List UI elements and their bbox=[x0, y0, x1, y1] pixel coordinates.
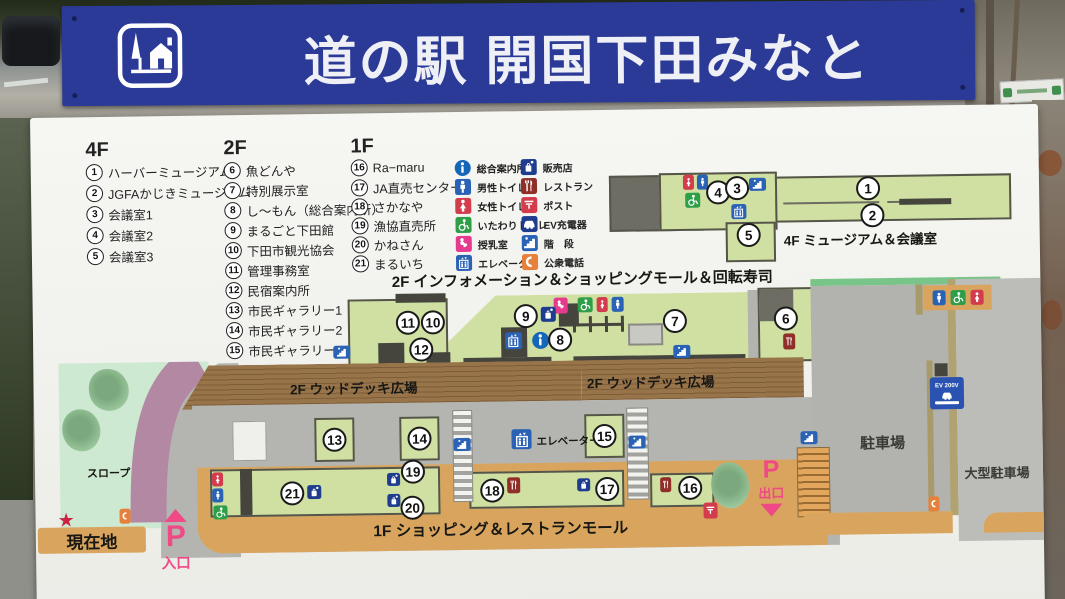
parking-bottom-edge bbox=[801, 511, 953, 535]
female-toilet-icon bbox=[683, 175, 694, 190]
icon-legend-item: 総合案内所 bbox=[455, 159, 527, 176]
background-car bbox=[2, 16, 60, 66]
ev-sign-bar bbox=[935, 401, 959, 404]
legend-item-number: 12 bbox=[225, 282, 242, 299]
elevator-icon bbox=[511, 429, 531, 449]
sign-green-mark bbox=[1003, 88, 1012, 97]
legend-item-label: まるごと下田館 bbox=[246, 220, 334, 240]
legend-item: 9まるごと下田館 bbox=[224, 220, 334, 241]
floor2-small-room bbox=[628, 323, 663, 345]
legend-item-label: 市民ギャラリー1 bbox=[248, 300, 343, 320]
stairs-icon bbox=[454, 438, 471, 451]
parking-exit-p: P bbox=[746, 457, 796, 483]
male-toilet-icon bbox=[612, 297, 624, 312]
legend-item-number: 7 bbox=[224, 182, 241, 199]
background-left-strip bbox=[0, 118, 33, 508]
parking-entrance-label: 入口 bbox=[148, 552, 204, 574]
stairs-icon bbox=[333, 346, 350, 359]
female-toilet-icon bbox=[970, 290, 983, 305]
payphone-icon bbox=[119, 509, 130, 524]
legend-item-number: 4 bbox=[87, 227, 104, 244]
banner-screw bbox=[72, 16, 77, 21]
accessible-toilet-icon bbox=[950, 290, 965, 305]
stairs-icon bbox=[749, 178, 766, 191]
banner-screw bbox=[72, 93, 77, 98]
floor4-label: 4F ミュージアム＆会議室 bbox=[784, 227, 938, 249]
legend-item: 1ハーバーミュージアム bbox=[86, 161, 232, 182]
icon-legend-item: 女性トイレ bbox=[455, 197, 527, 214]
accessible-toilet-icon bbox=[213, 505, 227, 519]
floor2-title: 2F インフォメーション＆ショッピングモール＆回転寿司 bbox=[382, 266, 782, 293]
background-left-bottom bbox=[0, 500, 33, 599]
legend-item: 7特別展示室 bbox=[224, 180, 309, 200]
floor1-label: 1F ショッピング＆レストランモール bbox=[366, 516, 636, 542]
legend-item: 4会議室2 bbox=[87, 225, 154, 245]
legend-item-number: 1 bbox=[86, 164, 103, 181]
legend-item: 19漁協直売所 bbox=[351, 215, 436, 235]
stairs-icon bbox=[800, 431, 817, 444]
info-icon bbox=[455, 160, 471, 176]
elevator-icon bbox=[456, 255, 472, 271]
large-parking-label: 大型駐車場 bbox=[951, 462, 1043, 482]
icon-legend-item: 授乳室 bbox=[456, 235, 508, 252]
legend-item-number: 21 bbox=[352, 255, 369, 272]
banner-screw bbox=[960, 85, 965, 90]
parking-label: 駐車場 bbox=[842, 432, 922, 454]
legend-item-number: 8 bbox=[224, 202, 241, 219]
icon-legend-item: 販売店 bbox=[521, 158, 573, 175]
legend-item-number: 2 bbox=[86, 185, 103, 202]
legend-item: 10下田市観光協会 bbox=[225, 240, 335, 261]
payphone-icon bbox=[522, 254, 538, 270]
legend-item-label: JA直売センター bbox=[373, 177, 463, 197]
legend-item-label: かねさん bbox=[374, 235, 424, 255]
legend-item-label: 特別展示室 bbox=[246, 180, 309, 200]
info-icon bbox=[532, 332, 549, 349]
legend-item-label: 魚どんや bbox=[246, 160, 296, 180]
icon-legend-item: ポスト bbox=[521, 196, 573, 213]
legend-item-number: 20 bbox=[352, 236, 369, 253]
stairs-icon bbox=[673, 345, 690, 358]
icon-legend-label: EV充電器 bbox=[543, 216, 587, 232]
accessible-toilet-icon bbox=[685, 193, 700, 208]
shop-icon bbox=[541, 307, 556, 322]
icon-legend-item: 階 段 bbox=[522, 234, 574, 251]
icon-legend-label: 総合案内所 bbox=[477, 160, 527, 176]
legend-item-number: 3 bbox=[86, 206, 103, 223]
legend-item-number: 6 bbox=[224, 162, 241, 179]
slope-label: スロープ bbox=[87, 465, 131, 482]
legend-item-number: 17 bbox=[351, 179, 368, 196]
female-toilet-icon bbox=[597, 297, 608, 312]
icon-legend-item: レストラン bbox=[521, 177, 593, 194]
nursing-room-icon bbox=[456, 236, 472, 252]
room-marker-2: 2 bbox=[860, 203, 884, 227]
legend-item-number: 14 bbox=[226, 322, 243, 339]
legend-item-label: 管理事務室 bbox=[247, 260, 310, 280]
down-arrow-icon bbox=[760, 504, 782, 517]
legend-item: 14市民ギャラリー2 bbox=[226, 320, 343, 341]
background-rust-leaves bbox=[1038, 150, 1062, 176]
parking-entrance: P 入口 bbox=[147, 509, 204, 574]
stairs-icon bbox=[628, 435, 645, 448]
legend-item: 11管理事務室 bbox=[225, 260, 310, 280]
legend-item-label: 市民ギャラリー2 bbox=[248, 320, 343, 340]
sign-green-mark bbox=[1051, 85, 1060, 94]
legend-item: 15市民ギャラリー3 bbox=[226, 340, 343, 361]
legend-item: 20かねさん bbox=[352, 235, 424, 255]
icon-legend-item: 男性トイレ bbox=[455, 178, 527, 195]
white-kiosk-box bbox=[232, 421, 267, 461]
shop-icon bbox=[387, 494, 400, 507]
floor-heading-2f: 2F bbox=[223, 137, 247, 160]
walkway-elevator-label: エレベーター bbox=[536, 433, 599, 449]
parking-exit: P 出口 bbox=[746, 457, 797, 517]
female-toilet-icon bbox=[212, 472, 223, 486]
legend-item: 12民宿案内所 bbox=[225, 280, 310, 300]
legend-item-number: 16 bbox=[351, 159, 368, 176]
shop-icon bbox=[387, 473, 400, 486]
current-location-bar: 現在地 bbox=[38, 526, 146, 554]
legend-item-label: 会議室2 bbox=[109, 225, 154, 245]
male-toilet-icon bbox=[455, 179, 471, 195]
legend-item-label: 会議室1 bbox=[108, 204, 153, 224]
icon-legend-label: 階 段 bbox=[544, 235, 574, 250]
banner-screw bbox=[960, 8, 965, 13]
ev-charger-icon bbox=[521, 216, 537, 232]
restaurant-icon bbox=[507, 477, 520, 493]
accessible-toilet-icon bbox=[578, 297, 593, 312]
outdoor-staircase bbox=[797, 447, 831, 517]
legend-item-label: 漁協直売所 bbox=[373, 215, 436, 235]
legend-item: 6魚どんや bbox=[224, 160, 296, 180]
parking-wall bbox=[915, 285, 922, 315]
legend-item: 5会議室3 bbox=[87, 246, 154, 266]
tree bbox=[89, 369, 130, 412]
legend-item-number: 9 bbox=[224, 222, 241, 239]
icon-legend-label: ポスト bbox=[543, 197, 573, 212]
staircase-strip bbox=[452, 410, 473, 502]
floor4-dark-segment bbox=[899, 198, 951, 205]
male-toilet-icon bbox=[212, 488, 223, 502]
legend-item-label: さかなや bbox=[373, 197, 423, 217]
legend-item-label: Ra−maru bbox=[373, 160, 425, 175]
stairs-icon bbox=[522, 235, 538, 251]
floor4-main-bar bbox=[775, 173, 1012, 222]
elevator-icon bbox=[505, 332, 522, 349]
legend-item-number: 19 bbox=[351, 217, 368, 234]
legend-item-number: 13 bbox=[226, 302, 243, 319]
ev-charger-sign: EV 200V bbox=[930, 377, 964, 409]
legend-item: 13市民ギャラリー1 bbox=[226, 300, 343, 321]
legend-item-label: ハーバーミュージアム bbox=[108, 161, 232, 182]
icon-legend-item: EV充電器 bbox=[521, 215, 587, 232]
shop-icon bbox=[521, 159, 537, 175]
parking-toilet-box bbox=[923, 285, 991, 311]
icon-legend-label: 販売店 bbox=[543, 159, 573, 174]
legend-item: 17JA直売センター bbox=[351, 177, 463, 198]
parking-entrance-p: P bbox=[148, 522, 204, 553]
accessible-toilet-icon bbox=[455, 217, 471, 233]
icon-legend-label: レストラン bbox=[543, 178, 593, 194]
legend-item-number: 18 bbox=[351, 198, 368, 215]
floor1-wall bbox=[240, 469, 253, 515]
large-parking-bottom-edge bbox=[984, 512, 1044, 533]
female-toilet-icon bbox=[455, 198, 471, 214]
payphone-icon bbox=[928, 496, 939, 511]
legend-item: 18さかなや bbox=[351, 197, 423, 217]
floor-heading-1f: 1F bbox=[350, 135, 374, 158]
icon-legend-label: 男性トイレ bbox=[477, 179, 527, 195]
banner-title: 道の駅 開国下田みなと bbox=[212, 16, 963, 97]
staircase-strip bbox=[626, 407, 649, 499]
icon-legend-label: 公衆電話 bbox=[544, 254, 584, 270]
legend-item: 3会議室1 bbox=[86, 204, 153, 224]
ev-car-icon bbox=[939, 389, 955, 401]
map-board: 4F 2F 1F 1ハーバーミュージアム 2JGFAかじきミュージアム 3会議室… bbox=[30, 104, 1045, 599]
floor-heading-4f: 4F bbox=[85, 139, 109, 162]
floor2-wall bbox=[395, 293, 445, 303]
wood-deck-left-label: 2F ウッドデッキ広場 bbox=[254, 376, 454, 399]
title-banner: 道の駅 開国下田みなと bbox=[62, 0, 976, 106]
post-icon bbox=[703, 502, 717, 518]
sign-green-text-blur bbox=[1017, 88, 1047, 94]
current-location-label: 現在地 bbox=[66, 527, 117, 553]
legend-item-label: 民宿案内所 bbox=[247, 280, 310, 300]
elevator-icon bbox=[731, 204, 746, 219]
restaurant-icon bbox=[521, 178, 537, 194]
icon-legend-label: 女性トイレ bbox=[477, 198, 527, 214]
post-icon bbox=[521, 197, 537, 213]
shop-icon bbox=[307, 485, 321, 499]
legend-item-label: 会議室3 bbox=[109, 246, 154, 266]
legend-item: 16Ra−maru bbox=[351, 158, 425, 176]
ev-charger-post bbox=[935, 363, 948, 376]
icon-legend-label: 授乳室 bbox=[478, 236, 508, 251]
parking-exit-label: 出口 bbox=[746, 482, 796, 502]
legend-item-number: 10 bbox=[225, 242, 242, 259]
background-rust-leaves bbox=[1042, 300, 1062, 330]
large-parking-lot bbox=[955, 278, 1044, 541]
legend-item-number: 11 bbox=[225, 262, 242, 279]
shop-icon bbox=[577, 478, 590, 491]
male-toilet-icon bbox=[932, 290, 945, 305]
legend-item-label: 市民ギャラリー3 bbox=[248, 340, 343, 360]
restaurant-icon bbox=[783, 333, 795, 349]
michinoeki-logo bbox=[117, 22, 183, 88]
legend-item-number: 15 bbox=[226, 342, 243, 359]
wood-deck-right-label: 2F ウッドデッキ広場 bbox=[551, 370, 751, 393]
tree bbox=[62, 409, 101, 452]
photo-scene: 道の駅 開国下田みなと 4F 2F 1F 1ハーバーミュージアム 2JGFAかじ… bbox=[0, 0, 1065, 599]
legend-item-number: 5 bbox=[87, 248, 104, 265]
restaurant-icon bbox=[660, 477, 671, 492]
legend-item-label: 下田市観光協会 bbox=[247, 240, 335, 260]
